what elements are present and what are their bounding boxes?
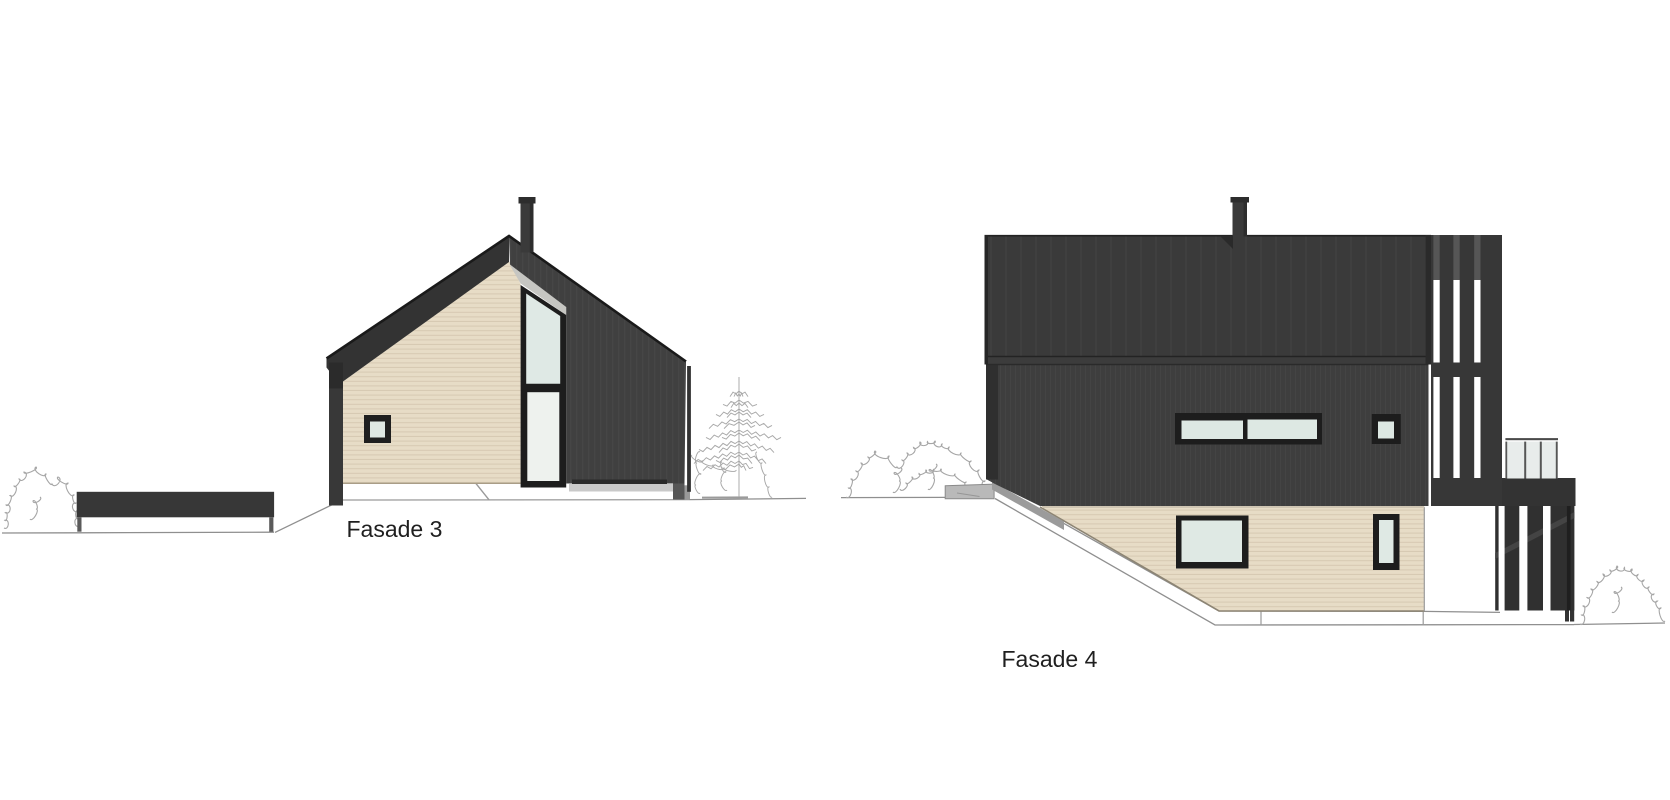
svg-text:Fasade 4: Fasade 4 [1002, 646, 1098, 672]
svg-text:Fasade 3: Fasade 3 [347, 516, 443, 542]
